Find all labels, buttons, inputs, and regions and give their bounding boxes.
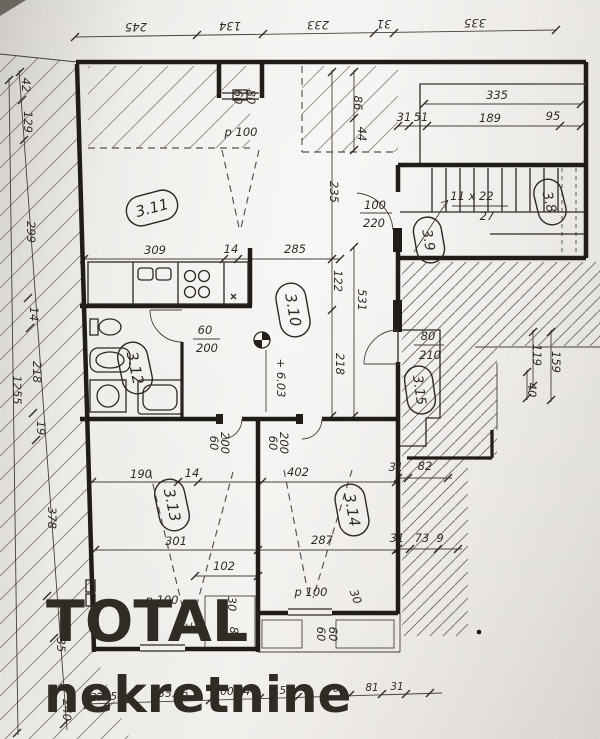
dim-bottom: 81 [365, 682, 378, 694]
dim-left: 42 [19, 78, 33, 93]
door13-height: 200 [218, 432, 232, 454]
room-number: 3.13 [160, 487, 185, 523]
room-label-3-12: 3.12 [115, 339, 155, 396]
dim-60-sill: 60 [326, 627, 340, 642]
dim-40: 40 [525, 383, 539, 398]
dim-190: 190 [130, 467, 152, 481]
dim-119: 119 [530, 344, 544, 366]
dim-309: 309 [144, 243, 166, 257]
stove-burner [185, 271, 196, 282]
dim-top: 134 [219, 19, 241, 33]
ink-dot [477, 630, 482, 635]
room-label-3-11: 3.11 [123, 187, 181, 229]
dim-301: 301 [165, 534, 187, 548]
dim-left: 129 [21, 111, 35, 133]
dim-159: 159 [549, 351, 563, 373]
door-14-arc [302, 419, 322, 439]
dim-235: 235 [327, 181, 341, 203]
window14-parapet: p 100 [294, 585, 328, 599]
room-number: 3.10 [281, 292, 305, 328]
entry-parapet: p 100 [224, 125, 258, 139]
dim-left: 14 [27, 307, 41, 322]
stair-door-width: 100 [364, 198, 386, 212]
watermark-line1: TOTAL [46, 589, 248, 655]
counter-mark [231, 294, 236, 299]
door14-height: 200 [277, 432, 291, 454]
dim-31: 31 [397, 110, 412, 124]
entry-door-height: 80 [244, 90, 258, 105]
door-315-height: 210 [419, 348, 441, 362]
stove-burner [185, 287, 196, 298]
bath-door-height: 200 [196, 341, 218, 355]
dim-60-sill: 60 [314, 627, 328, 642]
toilet-bowl [99, 319, 121, 335]
dim-122: 122 [331, 270, 345, 292]
room-number: 3.8 [539, 190, 560, 215]
dim-44: 44 [355, 127, 369, 142]
stove-burner [199, 271, 210, 282]
door-13-leaf [216, 414, 223, 424]
dim-335: 335 [486, 88, 508, 102]
stove-burner [199, 287, 210, 298]
dim-30b: 30 [347, 587, 365, 606]
bath-door-arc [150, 310, 182, 342]
room-number: 3.14 [340, 492, 364, 528]
stairs-label-riser: 27 [480, 209, 495, 223]
room-number: 3.11 [134, 195, 171, 221]
room-label-3-8: 3.8 [531, 176, 569, 227]
dim-86: 86 [351, 96, 365, 111]
dim-left: 299 [24, 221, 38, 243]
sill-mass-14a [262, 620, 302, 648]
toilet-tank [90, 319, 98, 335]
dim-82: 82 [418, 459, 433, 473]
room-label-3-13: 3.13 [152, 476, 192, 533]
stair-door-leaf [393, 228, 402, 252]
dim-14: 14 [224, 242, 239, 256]
bath-door-width: 60 [198, 323, 213, 337]
floorplan-drawing: 3.11 3.10 3.12 3.13 3.14 3.15 3.8 3.9 [0, 0, 600, 739]
door-315-width: 80 [421, 329, 436, 343]
dim-top: 31 [377, 17, 392, 31]
dim-31b: 31 [389, 460, 404, 474]
floorplan-photo: 3.11 3.10 3.12 3.13 3.14 3.15 3.8 3.9 [0, 0, 600, 739]
watermark-line2: nekretnine [44, 666, 351, 724]
door-315-leaf [393, 300, 402, 332]
dim-top: 335 [464, 16, 486, 30]
hall-lowzone-hatch [302, 66, 398, 152]
dim-9: 9 [436, 531, 443, 545]
dim-218: 218 [333, 353, 347, 375]
dim-531: 531 [355, 289, 369, 311]
sill-mass-14b [336, 620, 394, 648]
dim-left: 19 [34, 421, 48, 436]
dim-left: 378 [45, 507, 59, 529]
dim-top: 233 [307, 18, 329, 32]
dim-left: 218 [30, 361, 44, 383]
dim-102: 102 [213, 559, 235, 573]
door-14-leaf [296, 414, 303, 424]
stair-door-height: 220 [363, 216, 385, 230]
room-label-3-10: 3.10 [274, 281, 313, 339]
dim-14b: 14 [185, 466, 200, 480]
sink-bowl-left [138, 268, 153, 280]
photo-corner-shadow [0, 0, 26, 16]
entry-door-width: 60 [231, 90, 245, 105]
dim-95: 95 [546, 109, 561, 123]
dim-189: 189 [479, 111, 501, 125]
door-315-arc [364, 330, 398, 364]
window-14 [288, 609, 332, 615]
stairs-label: 11 x 22 [450, 189, 493, 203]
dim-73: 73 [415, 531, 430, 545]
level-marker-icon [254, 332, 270, 412]
dim-402: 402 [287, 465, 309, 479]
room-label-3-14: 3.14 [333, 482, 372, 538]
dim-left-total: 1255 [10, 375, 24, 404]
sink-bowl-right [156, 268, 171, 280]
dim-31c: 31 [390, 531, 405, 545]
level-value: + 6.03 [274, 359, 288, 398]
room-number: 3.9 [418, 228, 437, 252]
dim-287: 287 [311, 533, 334, 547]
dim-top: 245 [125, 20, 147, 34]
dim-285: 285 [284, 242, 306, 256]
dim-51: 51 [414, 110, 429, 124]
dim-bottom: 31 [390, 681, 403, 693]
kitchen-counter [88, 262, 248, 304]
